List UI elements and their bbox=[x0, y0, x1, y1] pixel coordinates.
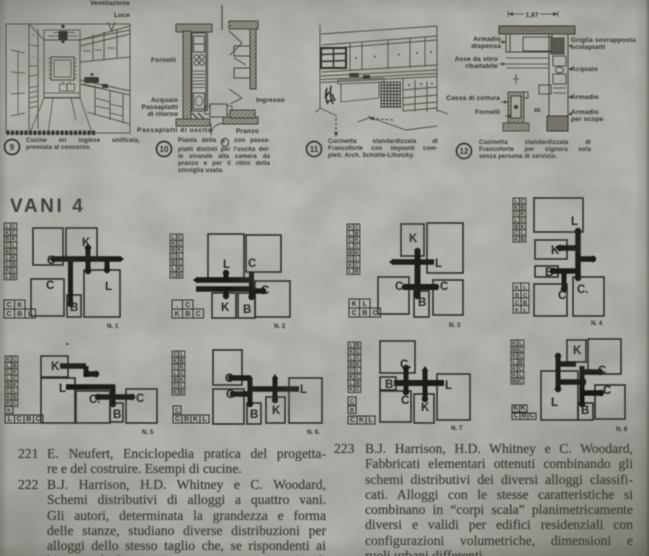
svg-text:C: C bbox=[440, 281, 448, 293]
svg-text:N. 4: N. 4 bbox=[591, 320, 603, 327]
svg-text:B: B bbox=[17, 311, 22, 318]
svg-text:K: K bbox=[193, 416, 198, 423]
svg-text:N. 6.: N. 6. bbox=[307, 429, 320, 436]
svg-text:K: K bbox=[573, 345, 582, 357]
svg-text:B: B bbox=[418, 297, 426, 309]
svg-text:B: B bbox=[185, 311, 190, 318]
svg-text:L: L bbox=[202, 416, 207, 423]
svg-text:C: C bbox=[350, 399, 354, 405]
svg-text:L: L bbox=[8, 416, 13, 423]
svg-text:C: C bbox=[356, 387, 360, 393]
svg-text:K: K bbox=[349, 387, 353, 393]
svg-text:L: L bbox=[571, 216, 578, 228]
svg-text:K: K bbox=[51, 361, 60, 373]
svg-text:C: C bbox=[196, 311, 201, 318]
svg-text:L: L bbox=[59, 383, 66, 395]
svg-text:B: B bbox=[385, 379, 393, 391]
svg-text:L: L bbox=[363, 301, 368, 308]
svg-text:C: C bbox=[350, 417, 355, 424]
svg-text:N. 3: N. 3 bbox=[449, 322, 461, 329]
svg-text:K: K bbox=[17, 302, 22, 309]
svg-text:C: C bbox=[175, 416, 180, 423]
svg-text:L: L bbox=[28, 311, 33, 318]
svg-text:.: . bbox=[176, 302, 178, 309]
svg-text:K: K bbox=[409, 233, 418, 245]
svg-text:B: B bbox=[362, 310, 367, 317]
svg-text:K: K bbox=[352, 301, 357, 308]
svg-text:B: B bbox=[243, 304, 251, 316]
svg-text:K: K bbox=[421, 402, 430, 414]
svg-text:C: C bbox=[7, 302, 12, 309]
svg-text:L: L bbox=[223, 259, 230, 271]
svg-text:K: K bbox=[521, 405, 526, 412]
svg-text:K: K bbox=[173, 390, 177, 396]
svg-text:K: K bbox=[513, 405, 518, 412]
svg-text:L: L bbox=[445, 380, 452, 392]
svg-text:B: B bbox=[113, 409, 121, 421]
svg-text:C: C bbox=[171, 273, 175, 279]
svg-text:C: C bbox=[373, 310, 378, 317]
svg-text:B: B bbox=[521, 237, 525, 243]
svg-text:L: L bbox=[368, 417, 373, 424]
svg-text:N. 7: N. 7 bbox=[451, 425, 463, 432]
svg-text:C: C bbox=[529, 413, 534, 420]
svg-text:K: K bbox=[7, 408, 11, 414]
svg-text:K: K bbox=[515, 308, 519, 314]
svg-text:K: K bbox=[175, 311, 180, 318]
svg-text:B: B bbox=[521, 413, 526, 420]
svg-text:C: C bbox=[185, 302, 190, 309]
svg-text:L: L bbox=[551, 397, 558, 409]
svg-text:K: K bbox=[272, 405, 281, 417]
svg-text:C: C bbox=[401, 395, 409, 407]
svg-text:B: B bbox=[178, 273, 182, 279]
svg-text:C: C bbox=[136, 393, 144, 405]
svg-text:L: L bbox=[435, 258, 442, 270]
svg-text:L: L bbox=[105, 281, 112, 293]
svg-text:C: C bbox=[17, 416, 22, 423]
svg-text:C: C bbox=[36, 416, 41, 423]
svg-text:C: C bbox=[248, 258, 256, 270]
svg-text:C: C bbox=[175, 408, 179, 414]
svg-text:N. 1: N. 1 bbox=[107, 323, 119, 330]
svg-text:K: K bbox=[514, 237, 518, 243]
svg-text:C: C bbox=[519, 379, 523, 385]
svg-text:L: L bbox=[300, 384, 307, 396]
svg-text:K: K bbox=[221, 302, 230, 314]
svg-text:B: B bbox=[26, 416, 31, 423]
svg-text:L: L bbox=[514, 413, 519, 420]
svg-text:12: 12 bbox=[460, 147, 469, 156]
svg-text:C: C bbox=[7, 311, 12, 318]
svg-text:86: 86 bbox=[534, 108, 541, 114]
svg-text:9: 9 bbox=[10, 143, 15, 152]
svg-text:B: B bbox=[512, 379, 516, 385]
svg-text:N. 5: N. 5 bbox=[142, 429, 154, 436]
svg-text:1,87: 1,87 bbox=[526, 12, 539, 19]
svg-text:C: C bbox=[603, 385, 611, 397]
svg-text:C: C bbox=[46, 280, 54, 292]
svg-text:C.: C. bbox=[577, 284, 589, 296]
svg-text:N. 8: N. 8 bbox=[616, 426, 628, 433]
svg-text:K: K bbox=[359, 417, 364, 424]
svg-text:10: 10 bbox=[160, 145, 169, 154]
svg-text:C: C bbox=[352, 310, 357, 317]
svg-text:B: B bbox=[350, 408, 354, 414]
svg-text:N. 2: N. 2 bbox=[274, 323, 286, 330]
svg-text:11: 11 bbox=[310, 145, 319, 154]
svg-text:B: B bbox=[355, 269, 359, 275]
svg-text:B: B bbox=[250, 409, 258, 421]
svg-text:B: B bbox=[12, 275, 16, 281]
svg-text:B: B bbox=[184, 416, 189, 423]
svg-text:B: B bbox=[180, 390, 184, 396]
